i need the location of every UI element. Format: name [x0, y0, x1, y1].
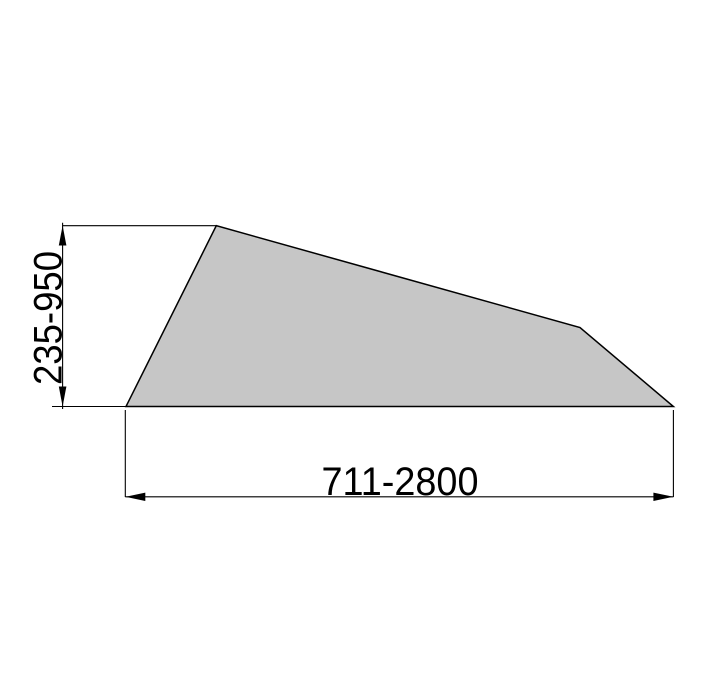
- svg-text:235-950: 235-950: [27, 251, 71, 385]
- svg-text:711-2800: 711-2800: [322, 460, 479, 504]
